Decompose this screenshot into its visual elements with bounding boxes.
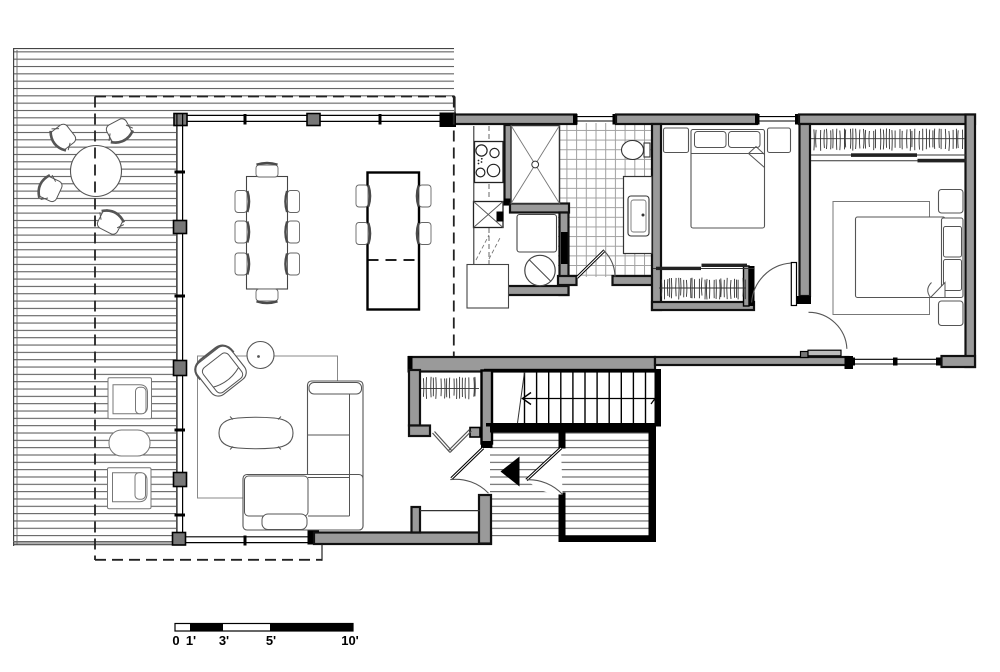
svg-text:1': 1' [186,633,196,648]
svg-text:3': 3' [219,633,229,648]
svg-text:0: 0 [172,633,179,648]
svg-text:10': 10' [341,633,359,648]
svg-text:5': 5' [266,633,276,648]
